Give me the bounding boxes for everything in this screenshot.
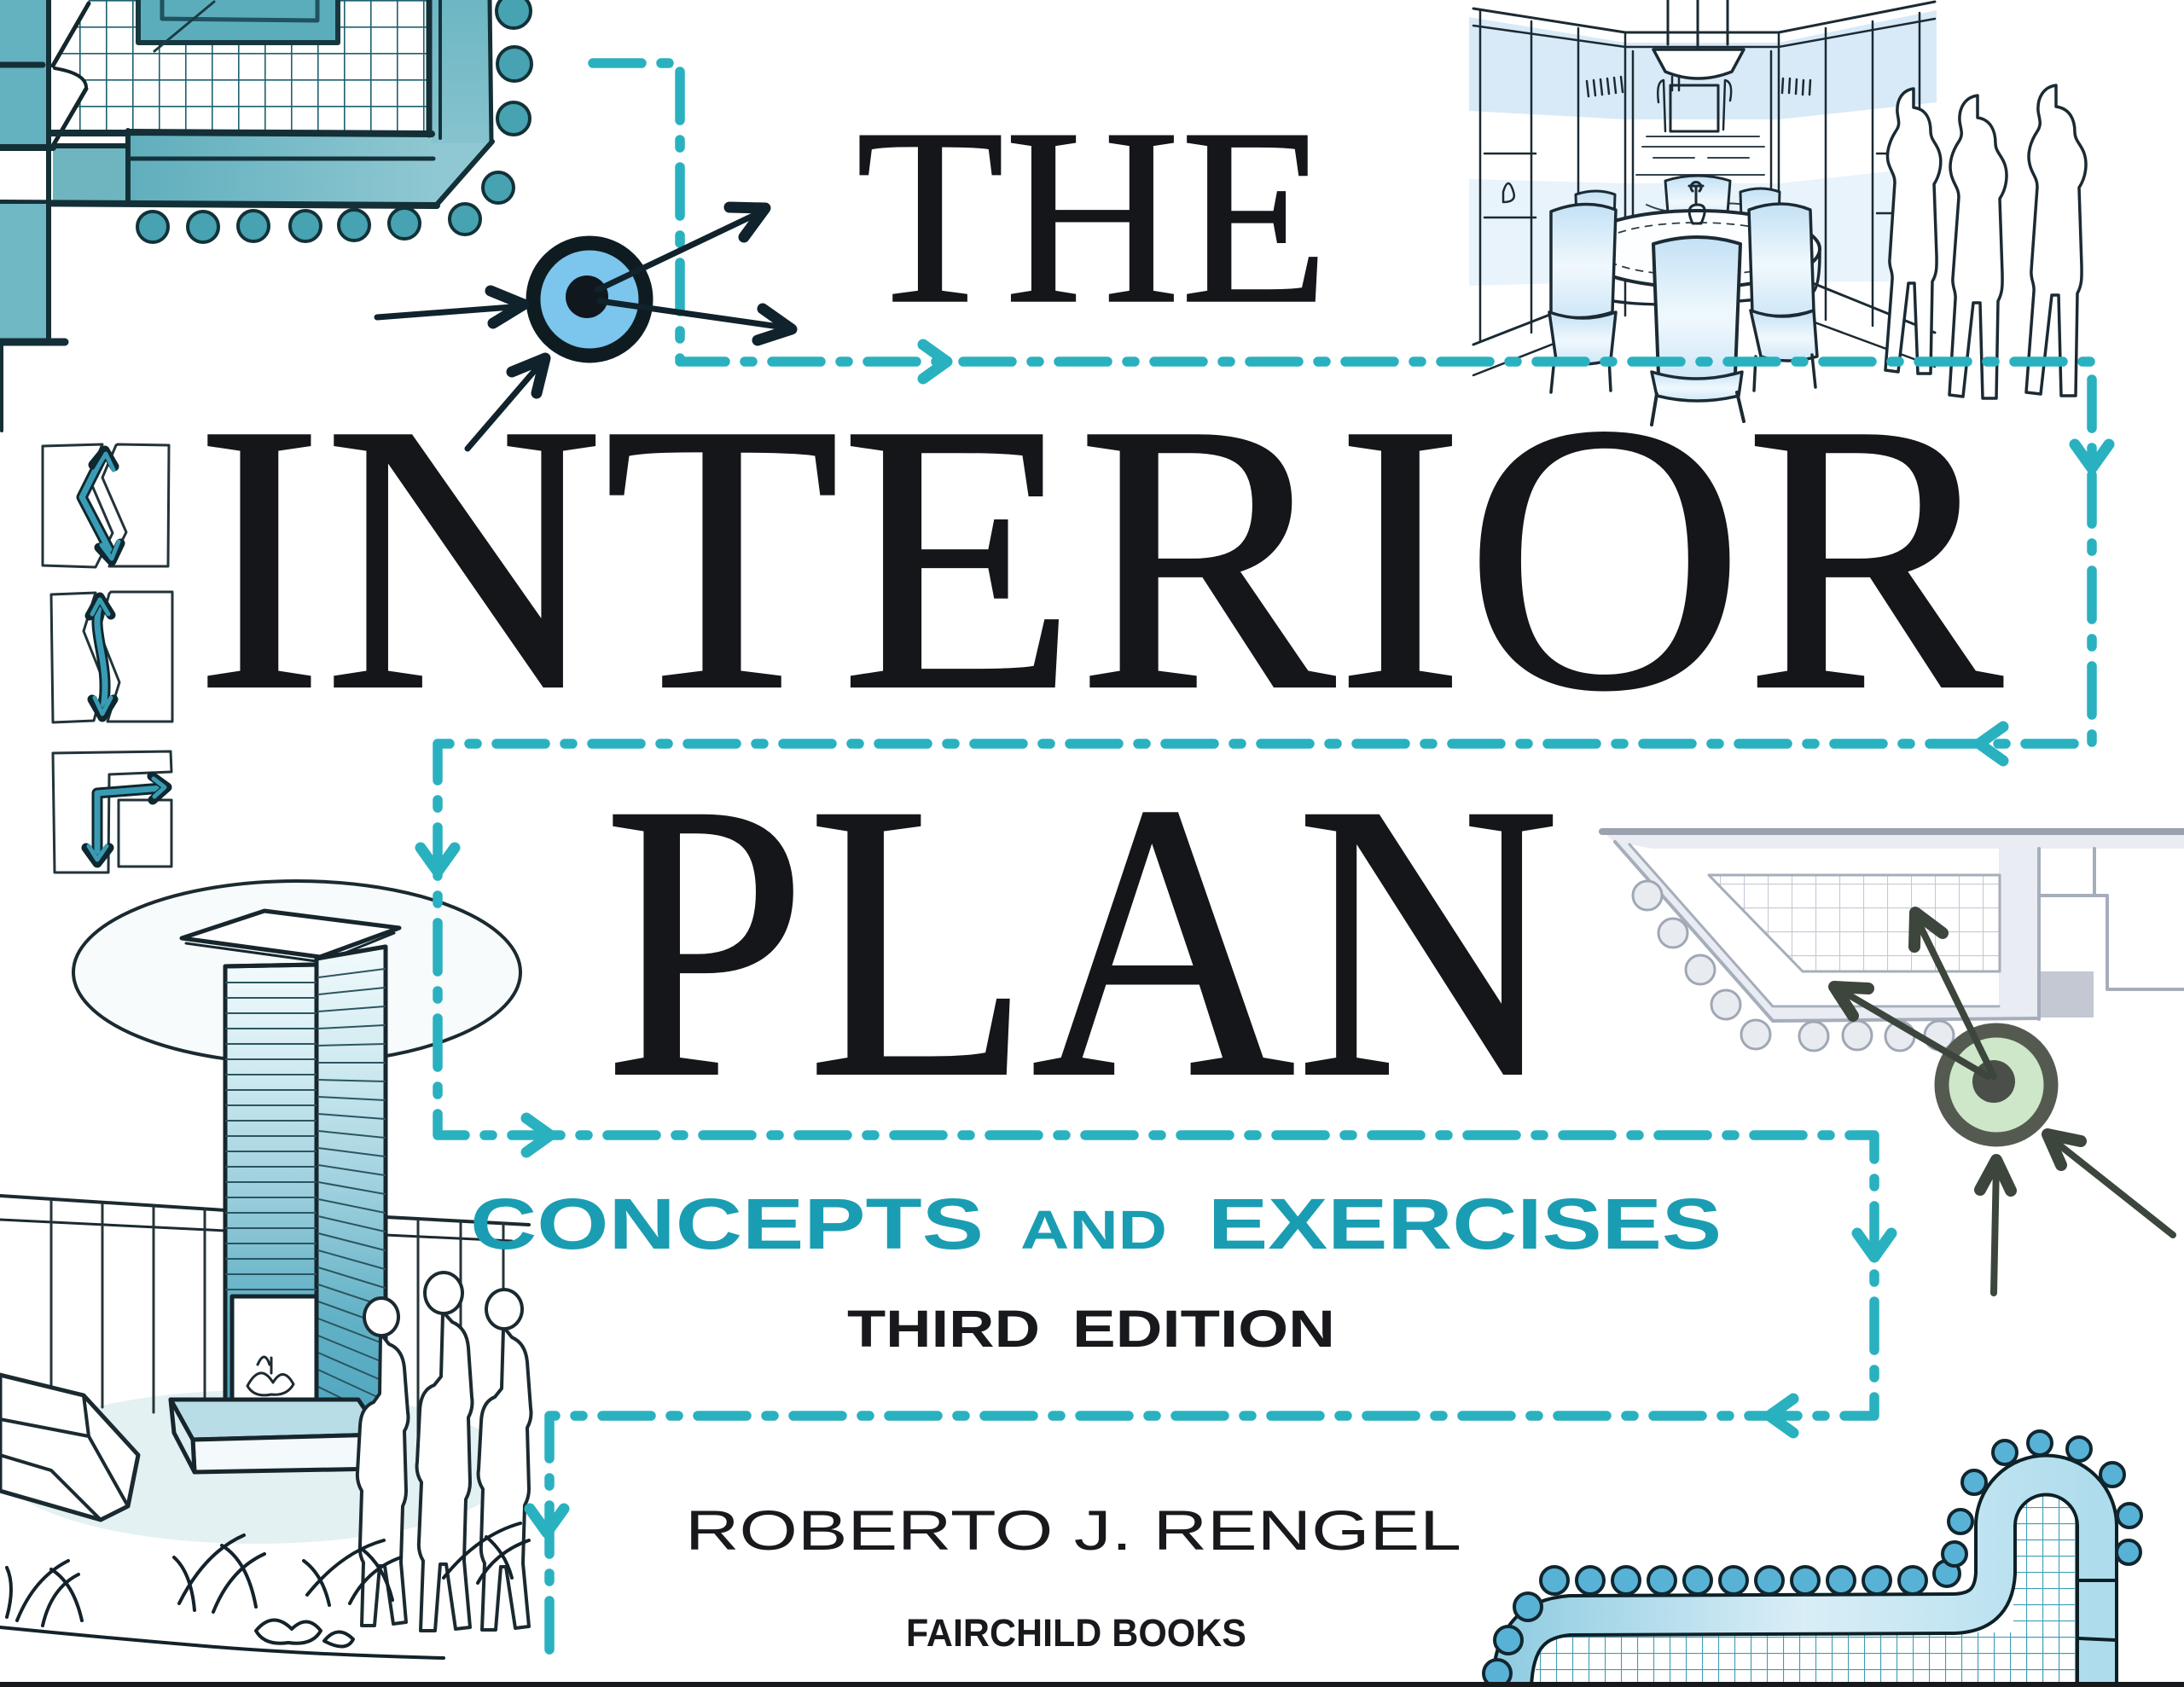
svg-text:FAIRCHILD BOOKS: FAIRCHILD BOOKS <box>906 1611 1246 1655</box>
svg-text:THIRD: THIRD <box>847 1300 1040 1358</box>
svg-text:CONCEPTS: CONCEPTS <box>470 1184 984 1264</box>
svg-text:AND: AND <box>1020 1199 1167 1261</box>
svg-text:INTERIOR: INTERIOR <box>195 345 2005 770</box>
svg-text:EXERCISES: EXERCISES <box>1208 1184 1722 1264</box>
svg-text:PLAN: PLAN <box>603 722 1560 1160</box>
svg-text:EDITION: EDITION <box>1072 1300 1335 1358</box>
svg-text:THE: THE <box>856 77 1329 357</box>
svg-text:ROBERTO J. RENGEL: ROBERTO J. RENGEL <box>685 1499 1461 1562</box>
